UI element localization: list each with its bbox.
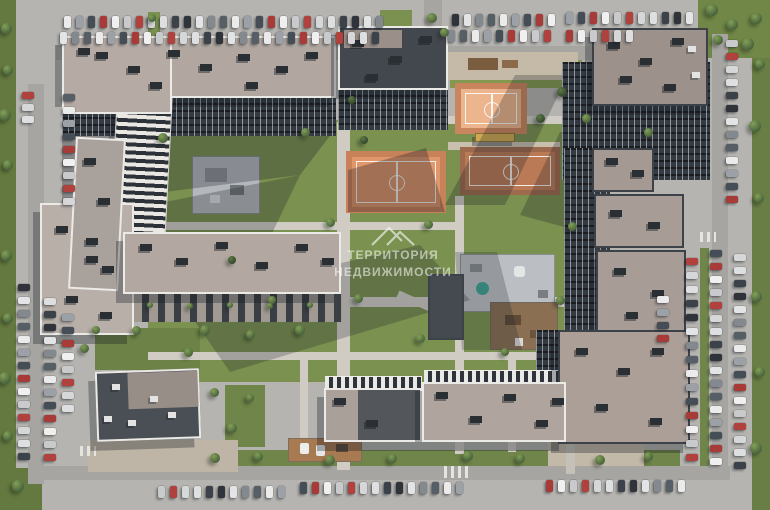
parked-car [336, 482, 343, 494]
teepee-1 [300, 443, 309, 454]
parked-car [63, 185, 75, 192]
hvac-unit [620, 76, 632, 83]
parked-car [734, 410, 746, 417]
parked-car [192, 32, 199, 44]
parked-car [726, 196, 738, 203]
parked-car [136, 16, 143, 28]
parked-car [626, 30, 633, 42]
hvac-unit [256, 262, 268, 269]
parked-car [44, 376, 56, 383]
hvac-unit [618, 368, 630, 375]
tree [516, 454, 525, 463]
parked-car [452, 14, 459, 26]
parked-car [734, 371, 746, 378]
tree [267, 303, 273, 309]
parked-car [710, 458, 722, 465]
parked-car [240, 32, 247, 44]
parked-car [657, 335, 669, 342]
hvac-unit [86, 238, 98, 245]
roof-kindergarten-lit [127, 371, 198, 409]
parked-car [254, 486, 261, 498]
tree [1, 23, 12, 34]
roof-west-tower [68, 137, 126, 291]
parked-car [476, 14, 483, 26]
tree [463, 451, 473, 461]
parked-car [544, 30, 551, 42]
parked-car [63, 159, 75, 166]
parked-car [726, 92, 738, 99]
hvac-unit [366, 74, 378, 81]
tree [354, 294, 363, 303]
tree [3, 65, 13, 75]
hvac-unit [276, 66, 288, 73]
hvac-unit [596, 404, 608, 411]
playground-left-item-2 [230, 185, 244, 195]
hvac-unit [436, 392, 448, 399]
hvac-unit [650, 418, 662, 425]
parked-car [18, 310, 30, 317]
parked-car [18, 375, 30, 382]
tree [12, 480, 24, 492]
teepee-2 [316, 445, 325, 456]
parked-car [324, 482, 331, 494]
tree [307, 302, 313, 308]
hvac-unit [632, 170, 644, 177]
parked-car [500, 14, 507, 26]
parked-car [726, 118, 738, 125]
parked-car [44, 298, 56, 305]
playground-wood-item-3 [515, 338, 523, 346]
parked-car [372, 32, 379, 44]
hvac-unit [688, 46, 696, 52]
parked-car [63, 133, 75, 140]
tree [147, 302, 153, 308]
parked-car [348, 482, 355, 494]
parked-car [444, 482, 451, 494]
parked-car [734, 436, 746, 443]
hvac-unit [576, 348, 588, 355]
hvac-unit [648, 222, 660, 229]
parked-car [348, 32, 355, 44]
basketball-court-markings [469, 156, 551, 186]
parked-car [218, 486, 225, 498]
playground-left-item-3 [210, 195, 220, 203]
parked-car [674, 12, 681, 24]
tree [742, 38, 754, 50]
tree [3, 431, 13, 441]
parked-car [384, 482, 391, 494]
parked-car [84, 32, 91, 44]
grass-k-east [225, 385, 265, 447]
tree [644, 128, 653, 137]
tree [360, 136, 368, 144]
parked-car [464, 14, 471, 26]
tree [557, 87, 567, 97]
parked-car [62, 340, 74, 347]
playground-wood-item-1 [505, 315, 521, 325]
hvac-unit [626, 312, 638, 319]
parked-car [44, 428, 56, 435]
parked-car [710, 341, 722, 348]
parked-car [734, 449, 746, 456]
parked-car [420, 482, 427, 494]
parked-car [280, 16, 287, 28]
tree [754, 193, 764, 203]
parked-car [63, 172, 75, 179]
parked-car [734, 254, 746, 261]
tree [246, 394, 254, 402]
parked-car [686, 286, 698, 293]
parked-car [496, 30, 503, 42]
roof-ne-tower [592, 28, 708, 106]
parked-car [686, 398, 698, 405]
hvac-unit [552, 398, 564, 405]
parked-car [686, 12, 693, 24]
parked-car [196, 16, 203, 28]
tree [644, 452, 653, 461]
tree [755, 367, 765, 377]
parked-car [726, 105, 738, 112]
parked-car [278, 486, 285, 498]
parked-car [448, 30, 455, 42]
parked-car [666, 480, 673, 492]
parked-car [686, 272, 698, 279]
tree [227, 302, 233, 308]
fitness-court [461, 89, 521, 128]
parked-car [396, 482, 403, 494]
parked-car [22, 92, 34, 99]
parked-car [88, 16, 95, 28]
parked-car [18, 414, 30, 421]
tree [148, 14, 156, 22]
hvac-unit [470, 416, 482, 423]
parked-car [726, 79, 738, 86]
parked-car [566, 12, 573, 24]
parked-car [678, 480, 685, 492]
tree [416, 334, 425, 343]
parked-car [336, 32, 343, 44]
parked-car [100, 16, 107, 28]
parked-car [230, 486, 237, 498]
parked-car [18, 349, 30, 356]
parked-car [566, 30, 573, 42]
parked-car [710, 445, 722, 452]
hvac-unit [306, 52, 318, 59]
roof-east-1 [592, 148, 654, 192]
parked-car [558, 480, 565, 492]
hvac-unit [238, 54, 250, 61]
hvac-unit [640, 58, 652, 65]
parked-car [686, 314, 698, 321]
parked-car [304, 16, 311, 28]
parked-car [252, 32, 259, 44]
parked-car [710, 367, 722, 374]
pergola-seat [502, 60, 518, 68]
hvac-unit [672, 38, 684, 45]
parked-car [578, 30, 585, 42]
tree [210, 453, 220, 463]
hvac-unit [96, 52, 108, 59]
parked-car [734, 280, 746, 287]
parked-car [657, 309, 669, 316]
parked-car [208, 16, 215, 28]
parked-car [72, 32, 79, 44]
roof-s2 [422, 382, 566, 442]
parked-car [156, 32, 163, 44]
hvac-unit [322, 258, 334, 265]
hvac-unit [150, 82, 162, 89]
parked-car [62, 366, 74, 373]
parked-car [312, 32, 319, 44]
hvac-unit [150, 396, 158, 402]
tree [295, 325, 305, 335]
parked-car [582, 480, 589, 492]
parked-car [710, 302, 722, 309]
tree [92, 326, 100, 334]
parked-car [734, 345, 746, 352]
parked-car [364, 16, 371, 28]
parked-car [606, 480, 613, 492]
parked-car [312, 482, 319, 494]
parked-car [590, 12, 597, 24]
parked-car [268, 16, 275, 28]
parked-car [352, 16, 359, 28]
tree [3, 313, 13, 323]
tree [187, 303, 193, 309]
parked-car [288, 32, 295, 44]
parked-car [686, 342, 698, 349]
hvac-unit [100, 312, 112, 319]
playground-small-item [336, 444, 348, 452]
tennis-court [352, 157, 440, 207]
hvac-unit [78, 48, 90, 55]
parked-car [594, 480, 601, 492]
parked-car [18, 336, 30, 343]
hvac-unit [128, 66, 140, 73]
tree [556, 296, 565, 305]
tree [749, 120, 761, 132]
parked-car [44, 454, 56, 461]
parked-car [182, 486, 189, 498]
parked-car [546, 480, 553, 492]
parked-car [602, 12, 609, 24]
parked-car [532, 30, 539, 42]
parked-car [316, 16, 323, 28]
hvac-unit [390, 56, 402, 63]
tree [755, 59, 765, 69]
parked-car [324, 32, 331, 44]
parked-car [62, 314, 74, 321]
hvac-unit [176, 258, 188, 265]
hvac-unit [246, 82, 258, 89]
parked-car [662, 12, 669, 24]
parked-car [536, 14, 543, 26]
parked-car [256, 16, 263, 28]
parked-car [686, 440, 698, 447]
parked-car [710, 263, 722, 270]
parked-car [62, 353, 74, 360]
parked-car [63, 94, 75, 101]
hvac-unit [296, 244, 308, 251]
hvac-unit [102, 266, 114, 273]
hvac-unit [334, 398, 346, 405]
hvac-unit [606, 158, 618, 165]
tree [301, 128, 310, 137]
parked-car [710, 276, 722, 283]
parked-car [60, 32, 67, 44]
parked-car [590, 30, 597, 42]
parked-car [710, 380, 722, 387]
hvac-unit [112, 384, 120, 390]
parked-car [710, 432, 722, 439]
hvac-unit [366, 420, 378, 427]
parked-car [512, 14, 519, 26]
parked-car [710, 419, 722, 426]
parked-car [160, 16, 167, 28]
hvac-unit [614, 268, 626, 275]
parked-car [108, 32, 115, 44]
grass-right-edge [752, 0, 770, 510]
parked-car [456, 482, 463, 494]
tree [326, 218, 335, 227]
parked-car [360, 32, 367, 44]
parked-car [726, 157, 738, 164]
tree [727, 19, 738, 30]
parked-car [734, 319, 746, 326]
parked-car [548, 14, 555, 26]
parked-car [76, 16, 83, 28]
parked-car [292, 16, 299, 28]
parked-car [654, 480, 661, 492]
parked-car [408, 482, 415, 494]
parked-car [63, 107, 75, 114]
roof-east-2 [594, 194, 684, 248]
parked-car [206, 486, 213, 498]
parked-car [132, 32, 139, 44]
hvac-unit [168, 50, 180, 57]
parked-car [44, 324, 56, 331]
tree [210, 388, 219, 397]
parked-car [686, 370, 698, 377]
fitness-court-markings [465, 93, 517, 124]
parked-car [168, 32, 175, 44]
parked-car [488, 14, 495, 26]
tree [254, 452, 263, 461]
parked-car [642, 480, 649, 492]
hvac-unit [56, 226, 68, 233]
parked-car [726, 40, 738, 47]
tennis-court-markings [356, 161, 436, 203]
parked-car [686, 328, 698, 335]
parked-car [44, 311, 56, 318]
parked-car [570, 480, 577, 492]
parked-car [734, 397, 746, 404]
parked-car [112, 16, 119, 28]
parked-car [484, 30, 491, 42]
tree [501, 348, 509, 356]
parked-car [62, 379, 74, 386]
tree [595, 455, 605, 465]
hvac-unit [200, 64, 212, 71]
parked-car [734, 293, 746, 300]
tree [3, 160, 13, 170]
parked-car [44, 337, 56, 344]
parked-car [18, 362, 30, 369]
parked-car [614, 12, 621, 24]
parked-car [204, 32, 211, 44]
parked-car [376, 16, 383, 28]
pergola [468, 58, 498, 70]
crosswalk-2 [444, 466, 470, 478]
tree [184, 348, 193, 357]
tree [751, 13, 762, 24]
parked-car [120, 32, 127, 44]
roof-utility [428, 274, 464, 340]
parked-car [300, 482, 307, 494]
parked-car [216, 32, 223, 44]
parked-car [18, 427, 30, 434]
parked-car [726, 66, 738, 73]
parked-car [710, 393, 722, 400]
parked-car [63, 146, 75, 153]
carousel [476, 282, 489, 295]
parked-car [630, 480, 637, 492]
hvac-unit [128, 420, 136, 426]
parked-car [626, 12, 633, 24]
tree [568, 222, 577, 231]
tree [227, 423, 237, 433]
parked-car [686, 454, 698, 461]
roof-s1-dark [358, 390, 420, 440]
parked-car [144, 32, 151, 44]
parked-car [340, 16, 347, 28]
parked-car [22, 104, 34, 111]
parked-car [180, 32, 187, 44]
hvac-unit [608, 42, 620, 49]
parked-car [228, 32, 235, 44]
parked-car [618, 480, 625, 492]
tree [388, 454, 397, 463]
parked-car [62, 392, 74, 399]
hvac-unit [86, 256, 98, 263]
parked-car [62, 327, 74, 334]
hvac-unit [168, 412, 176, 418]
tree [706, 4, 718, 16]
parked-car [220, 16, 227, 28]
parked-car [432, 482, 439, 494]
parked-car [686, 384, 698, 391]
parked-car [734, 358, 746, 365]
parked-car [650, 12, 657, 24]
tree [132, 326, 141, 335]
parked-car [18, 284, 30, 291]
tree [713, 35, 723, 45]
parked-car [734, 306, 746, 313]
parked-car [44, 363, 56, 370]
parked-car [520, 30, 527, 42]
tree [348, 96, 356, 104]
parked-car [172, 16, 179, 28]
hvac-unit [66, 296, 78, 303]
hvac-unit [216, 242, 228, 249]
stage: ТЕРРИТОРИЯ НЕДВИЖИМОСТИ [0, 0, 770, 510]
parked-car [44, 402, 56, 409]
parked-car [686, 356, 698, 363]
parked-car [18, 453, 30, 460]
tree [325, 455, 335, 465]
playground-center-item-2 [538, 290, 548, 298]
tree [751, 291, 762, 302]
